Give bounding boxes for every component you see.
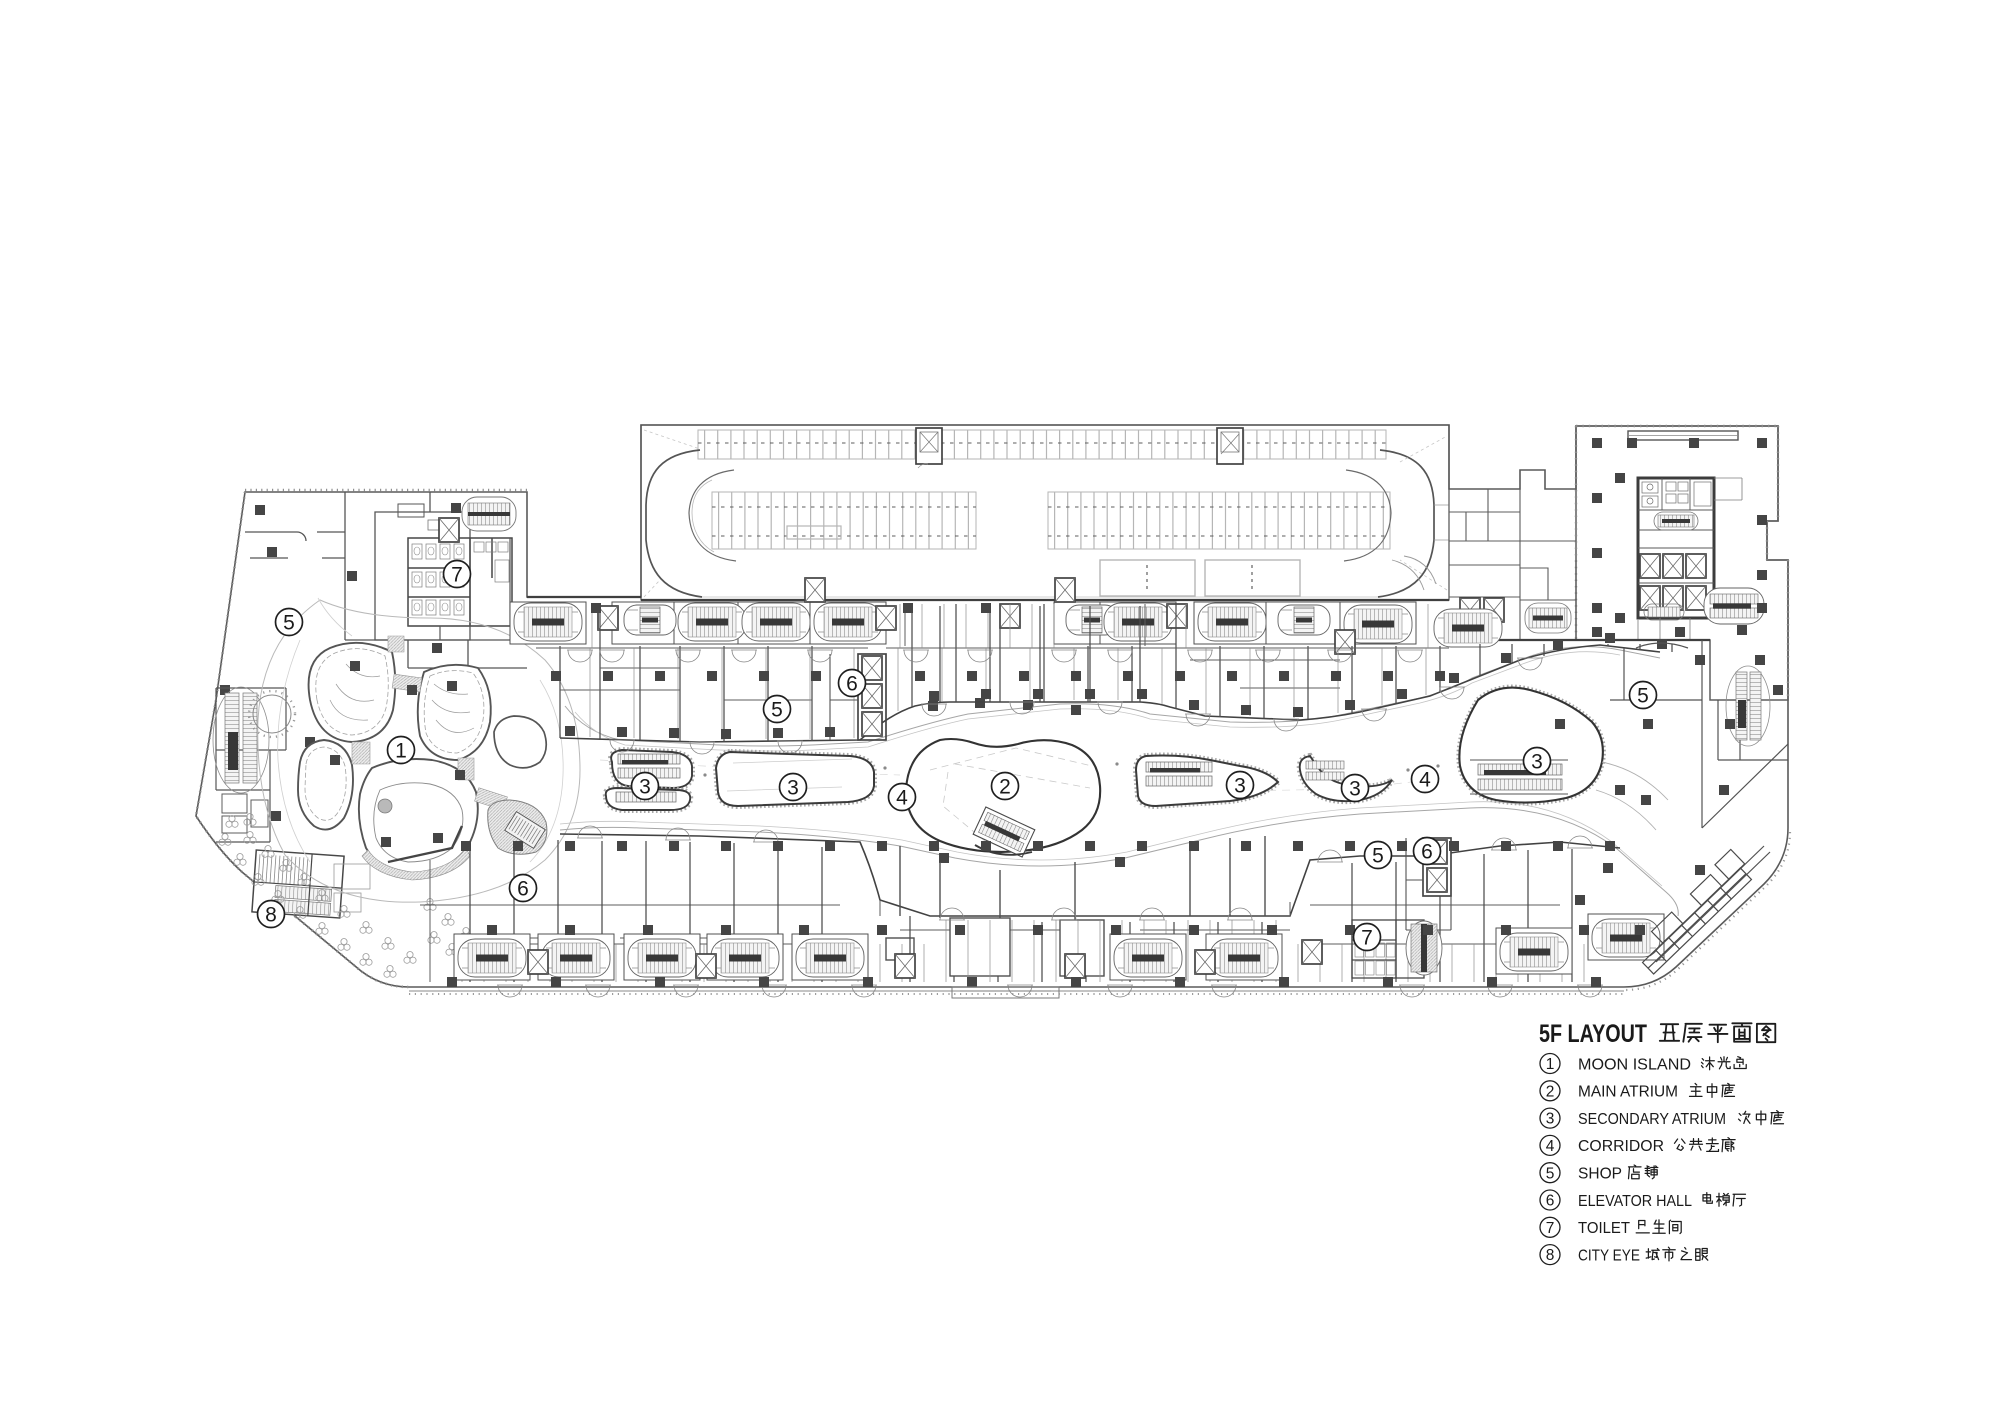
svg-text:5F LAYOUT: 5F LAYOUT xyxy=(1539,1020,1647,1048)
svg-text:TOILET: TOILET xyxy=(1578,1220,1630,1237)
svg-text:5: 5 xyxy=(1546,1165,1555,1182)
svg-text:6: 6 xyxy=(846,672,858,695)
svg-text:5: 5 xyxy=(283,611,295,634)
svg-text:4: 4 xyxy=(1546,1138,1555,1155)
svg-text:6: 6 xyxy=(1546,1193,1555,1210)
svg-text:6: 6 xyxy=(517,877,529,900)
svg-text:SHOP: SHOP xyxy=(1578,1166,1622,1183)
svg-text:7: 7 xyxy=(451,563,463,586)
svg-text:3: 3 xyxy=(639,775,651,798)
svg-text:8: 8 xyxy=(265,903,277,926)
svg-text:1: 1 xyxy=(395,739,407,762)
svg-text:1: 1 xyxy=(1546,1056,1555,1073)
svg-text:5: 5 xyxy=(1637,684,1649,707)
svg-text:2: 2 xyxy=(999,775,1011,798)
svg-text:3: 3 xyxy=(1349,777,1361,800)
svg-text:5: 5 xyxy=(771,698,783,721)
svg-text:3: 3 xyxy=(787,776,799,799)
svg-text:SECONDARY ATRIUM: SECONDARY ATRIUM xyxy=(1578,1111,1726,1128)
svg-text:MAIN ATRIUM: MAIN ATRIUM xyxy=(1578,1084,1678,1101)
svg-text:CORRIDOR: CORRIDOR xyxy=(1578,1138,1664,1155)
svg-text:3: 3 xyxy=(1546,1111,1555,1128)
svg-text:8: 8 xyxy=(1546,1247,1555,1264)
svg-text:6: 6 xyxy=(1421,840,1433,863)
svg-text:MOON ISLAND: MOON ISLAND xyxy=(1578,1056,1691,1073)
svg-text:7: 7 xyxy=(1361,926,1373,949)
svg-text:4: 4 xyxy=(1419,768,1431,791)
svg-text:CITY EYE: CITY EYE xyxy=(1578,1247,1640,1264)
svg-text:2: 2 xyxy=(1546,1083,1555,1100)
svg-text:ELEVATOR HALL: ELEVATOR HALL xyxy=(1578,1193,1692,1210)
svg-text:3: 3 xyxy=(1234,774,1246,797)
svg-text:4: 4 xyxy=(896,786,908,809)
svg-text:3: 3 xyxy=(1531,750,1543,773)
svg-text:7: 7 xyxy=(1546,1220,1555,1237)
svg-text:5: 5 xyxy=(1372,844,1384,867)
